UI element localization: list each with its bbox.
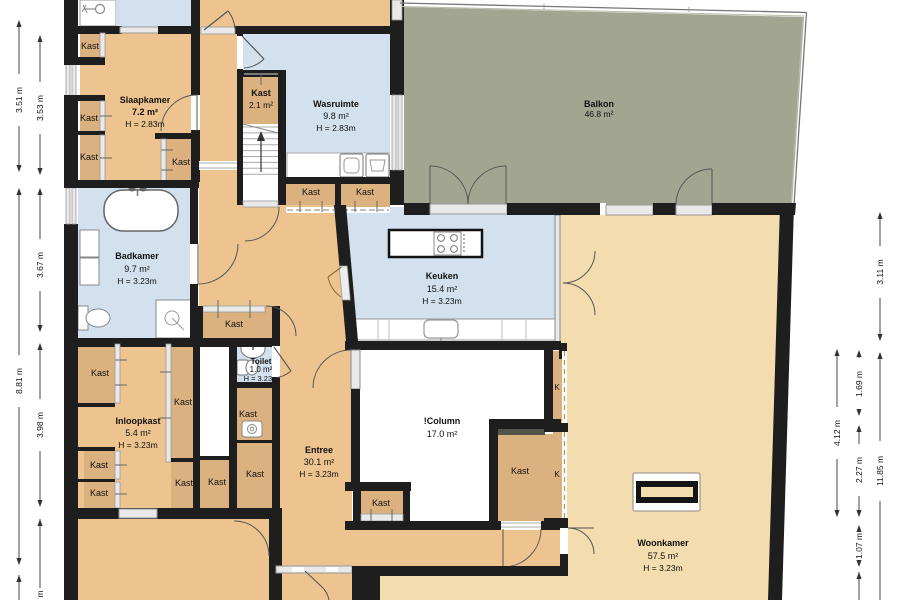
svg-text:1.0 m²: 1.0 m²	[250, 365, 273, 374]
svg-text:H = 3.23m: H = 3.23m	[422, 296, 461, 306]
svg-text:Kast: Kast	[372, 498, 391, 508]
svg-text:9.8 m²: 9.8 m²	[323, 111, 349, 121]
svg-text:K: K	[554, 383, 560, 392]
svg-text:2.27 m: 2.27 m	[854, 457, 864, 483]
svg-text:Kast: Kast	[80, 113, 99, 123]
svg-text:Balkon: Balkon	[584, 99, 614, 109]
svg-text:!Column: !Column	[424, 416, 461, 426]
svg-text:46.8 m²: 46.8 m²	[585, 109, 614, 119]
svg-text:H = 3.23m: H = 3.23m	[118, 440, 157, 450]
svg-text:3.98 m: 3.98 m	[35, 412, 45, 438]
svg-text:Woonkamer: Woonkamer	[637, 538, 689, 548]
svg-text:1.69 m: 1.69 m	[854, 371, 864, 397]
svg-text:3.51 m: 3.51 m	[14, 87, 24, 113]
svg-text:Kast: Kast	[239, 409, 258, 419]
svg-text:H = 3.23m: H = 3.23m	[643, 563, 682, 573]
svg-text:7.2 m²: 7.2 m²	[132, 107, 158, 117]
svg-text:K: K	[554, 470, 560, 479]
svg-text:1.07 m: 1.07 m	[854, 533, 864, 559]
svg-text:5.4 m²: 5.4 m²	[125, 428, 151, 438]
svg-text:57.5 m²: 57.5 m²	[648, 551, 679, 561]
svg-text:Entree: Entree	[305, 445, 333, 455]
svg-text:Kast: Kast	[80, 152, 99, 162]
svg-text:3.67 m: 3.67 m	[35, 252, 45, 278]
svg-text:Kast: Kast	[208, 477, 227, 487]
svg-text:Kast: Kast	[302, 187, 321, 197]
svg-text:Kast: Kast	[81, 41, 100, 51]
svg-text:2.1 m²: 2.1 m²	[249, 100, 273, 110]
svg-text:Kast: Kast	[356, 187, 375, 197]
svg-text:4.12 m: 4.12 m	[832, 420, 842, 446]
svg-text:Kast: Kast	[174, 397, 193, 407]
svg-text:Kast: Kast	[225, 319, 244, 329]
svg-text:H = 3.23m: H = 3.23m	[299, 469, 338, 479]
svg-text:30.1 m²: 30.1 m²	[304, 457, 335, 467]
svg-text:Kast: Kast	[172, 157, 191, 167]
svg-text:Kast: Kast	[511, 466, 530, 476]
svg-text:Kast: Kast	[91, 368, 110, 378]
svg-text:Kast: Kast	[246, 469, 265, 479]
svg-text:Slaapkamer: Slaapkamer	[120, 95, 171, 105]
svg-text:Wasruimte: Wasruimte	[313, 99, 359, 109]
svg-text:H = 3.23m: H = 3.23m	[244, 374, 279, 383]
svg-text:Kast: Kast	[251, 88, 271, 98]
svg-text:Keuken: Keuken	[426, 271, 459, 281]
svg-text:17.0 m²: 17.0 m²	[427, 429, 458, 439]
svg-text:11.85 m: 11.85 m	[875, 456, 885, 486]
svg-text:8.81 m: 8.81 m	[14, 368, 24, 394]
svg-text:3.53 m: 3.53 m	[35, 95, 45, 121]
svg-text:Badkamer: Badkamer	[115, 251, 159, 261]
svg-text:Kast: Kast	[90, 460, 109, 470]
svg-text:15.4 m²: 15.4 m²	[427, 284, 458, 294]
svg-text:Inloopkast: Inloopkast	[115, 416, 160, 426]
svg-text:Kast: Kast	[175, 478, 194, 488]
svg-text:3.11 m: 3.11 m	[875, 259, 885, 284]
svg-text:H = 2.83m: H = 2.83m	[316, 123, 355, 133]
svg-text:H = 2.83m: H = 2.83m	[125, 119, 164, 129]
svg-text:Kast: Kast	[90, 488, 109, 498]
svg-text:H = 3.23m: H = 3.23m	[117, 276, 156, 286]
svg-text:9.7 m²: 9.7 m²	[124, 264, 150, 274]
svg-text:m: m	[35, 590, 45, 597]
